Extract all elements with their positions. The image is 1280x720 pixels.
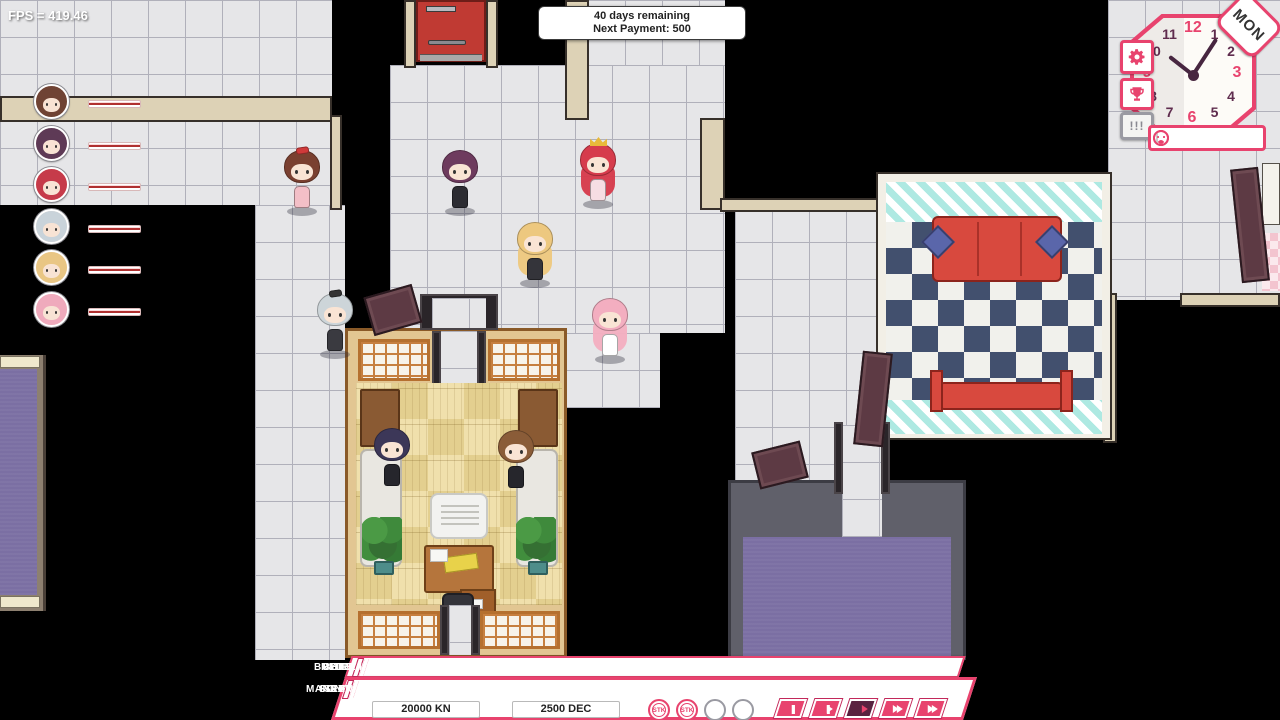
fastest-button[interactable]	[914, 699, 947, 718]
fast-forward-button[interactable]	[879, 699, 912, 718]
pause-button[interactable]	[774, 699, 807, 718]
play-button[interactable]	[844, 699, 877, 718]
step-button[interactable]	[809, 699, 842, 718]
bottom-menu: BUILD ROOMBUY FURNITUREREDECORATEHIRE ID…	[0, 0, 1280, 720]
game-screen: FPS = 419.46 40 days remaining Next Paym…	[0, 0, 1280, 720]
playback-controls	[0, 0, 1280, 720]
